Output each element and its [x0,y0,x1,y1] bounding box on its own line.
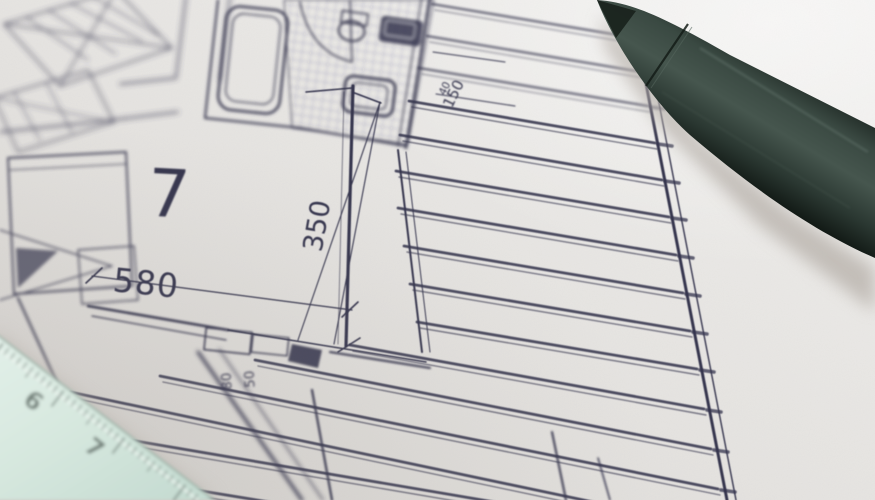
blueprint-photo: 7 580 [0,0,875,500]
photo-stage: 7 580 [0,0,875,500]
